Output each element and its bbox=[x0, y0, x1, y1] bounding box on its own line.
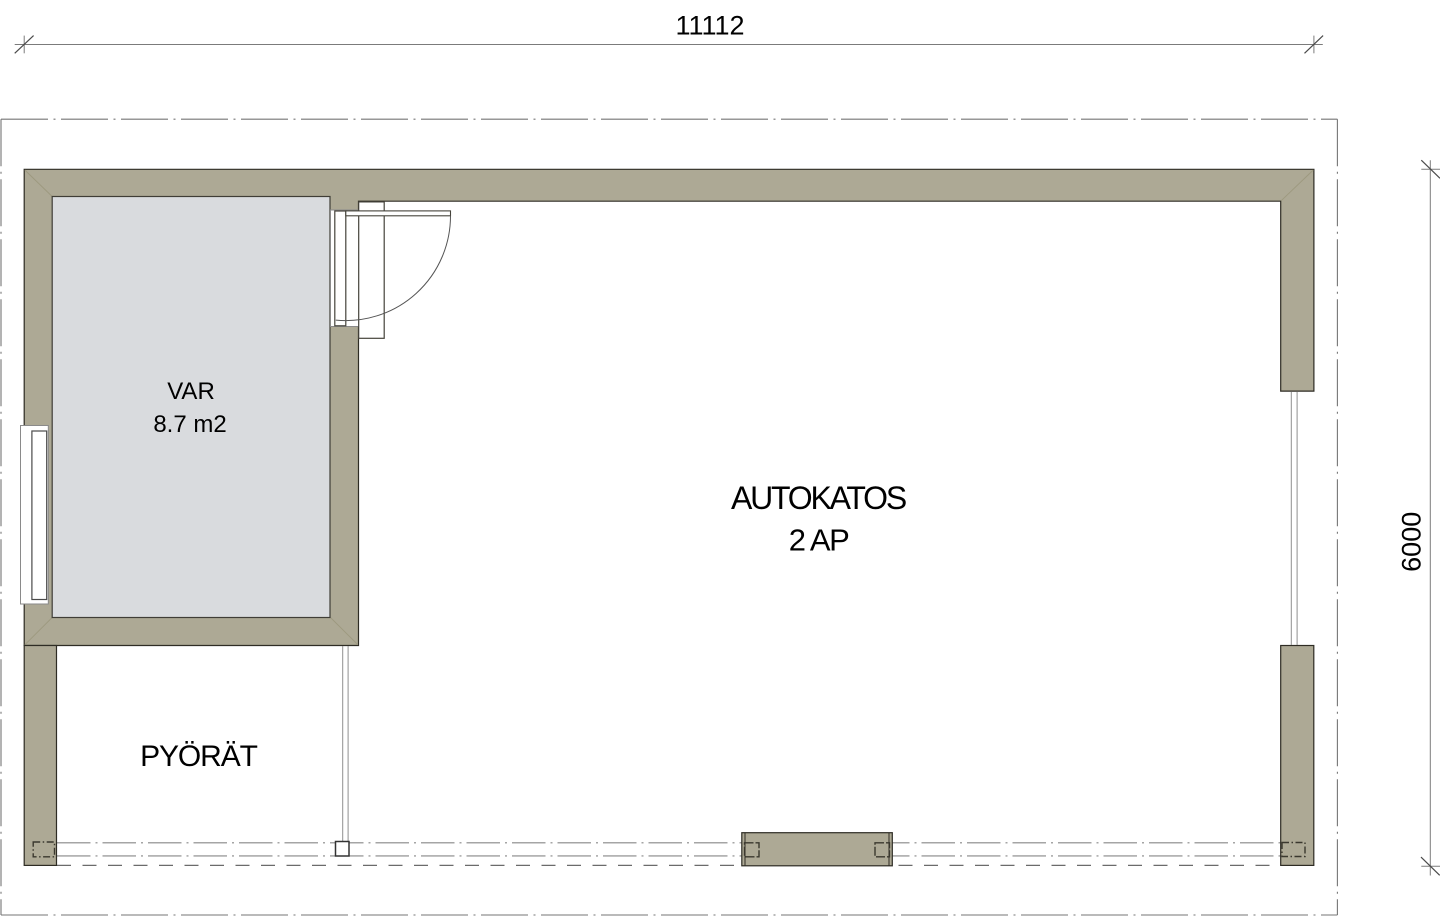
svg-text:PYÖRÄT: PYÖRÄT bbox=[140, 740, 258, 773]
svg-text:6000: 6000 bbox=[1397, 512, 1427, 572]
svg-text:2 AP: 2 AP bbox=[789, 523, 849, 558]
svg-text:8.7 m2: 8.7 m2 bbox=[153, 411, 226, 438]
svg-text:11112: 11112 bbox=[675, 11, 744, 41]
svg-text:VAR: VAR bbox=[167, 378, 215, 405]
svg-text:AUTOKATOS: AUTOKATOS bbox=[731, 480, 906, 516]
